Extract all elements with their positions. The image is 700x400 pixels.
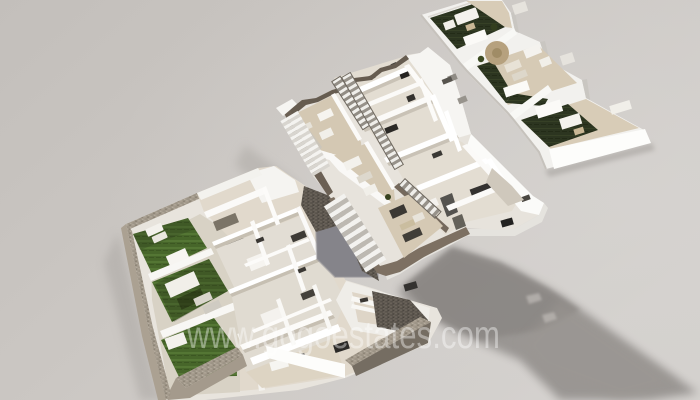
- svg-text:www.gogoestates.com: www.gogoestates.com: [186, 314, 500, 357]
